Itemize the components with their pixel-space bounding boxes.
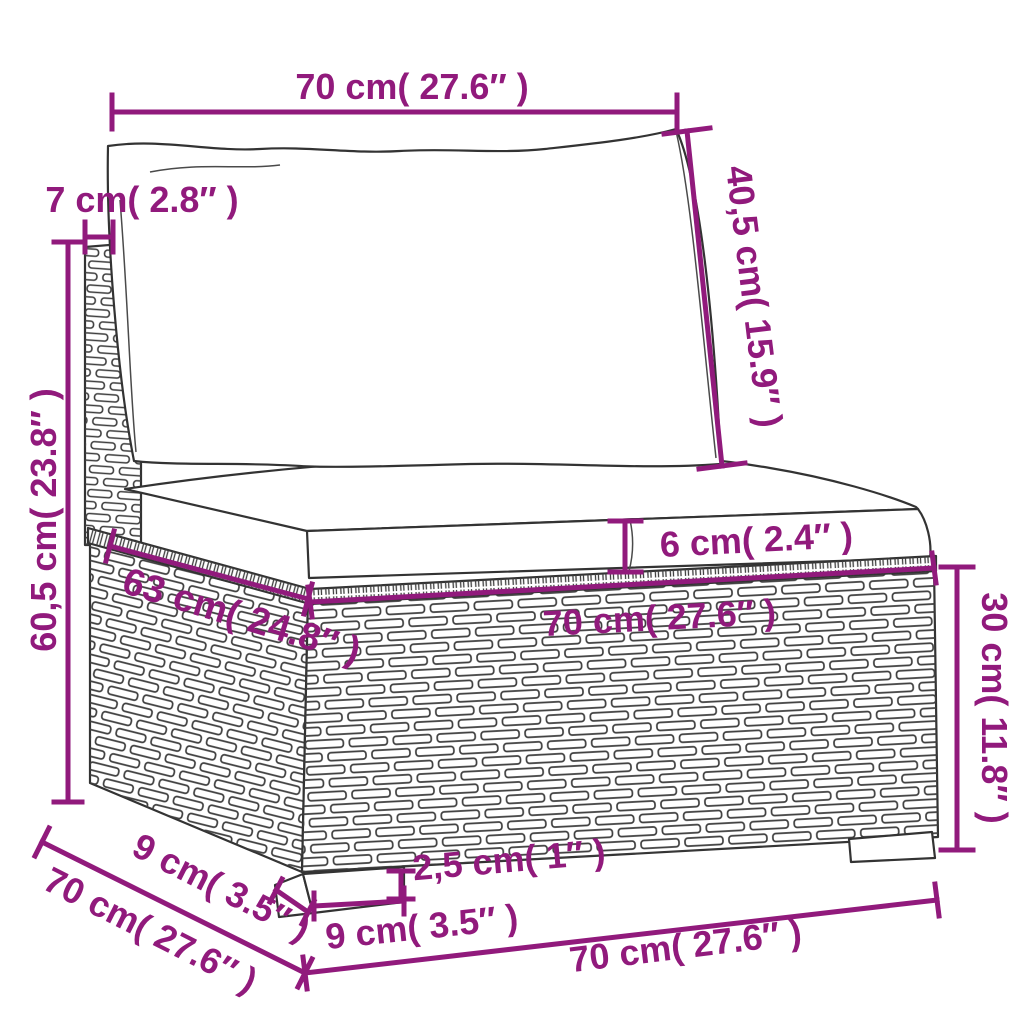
dim-base-height: 30 cm( 11.8″ ) <box>941 567 1015 850</box>
dim-left-height: 60,5 cm( 23.8″ ) <box>23 242 82 802</box>
base <box>88 528 938 872</box>
dim-bottom-width-label: 70 cm( 27.6″ ) <box>567 911 804 980</box>
dim-top-width-label: 70 cm( 27.6″ ) <box>295 66 528 107</box>
diagram-page: 70 cm( 27.6″ ) 40,5 cm( 15.9″ ) 7 cm( 2.… <box>0 0 1024 1024</box>
sofa-dimension-diagram: 70 cm( 27.6″ ) 40,5 cm( 15.9″ ) 7 cm( 2.… <box>0 0 1024 1024</box>
dim-left-height-label: 60,5 cm( 23.8″ ) <box>23 388 64 651</box>
dim-base-height-label: 30 cm( 11.8″ ) <box>974 592 1015 823</box>
dim-top-width: 70 cm( 27.6″ ) <box>112 66 677 129</box>
dim-post-width-label: 7 cm( 2.8″ ) <box>45 179 238 220</box>
dim-back-height-label: 40,5 cm( 15.9″ ) <box>718 163 791 429</box>
